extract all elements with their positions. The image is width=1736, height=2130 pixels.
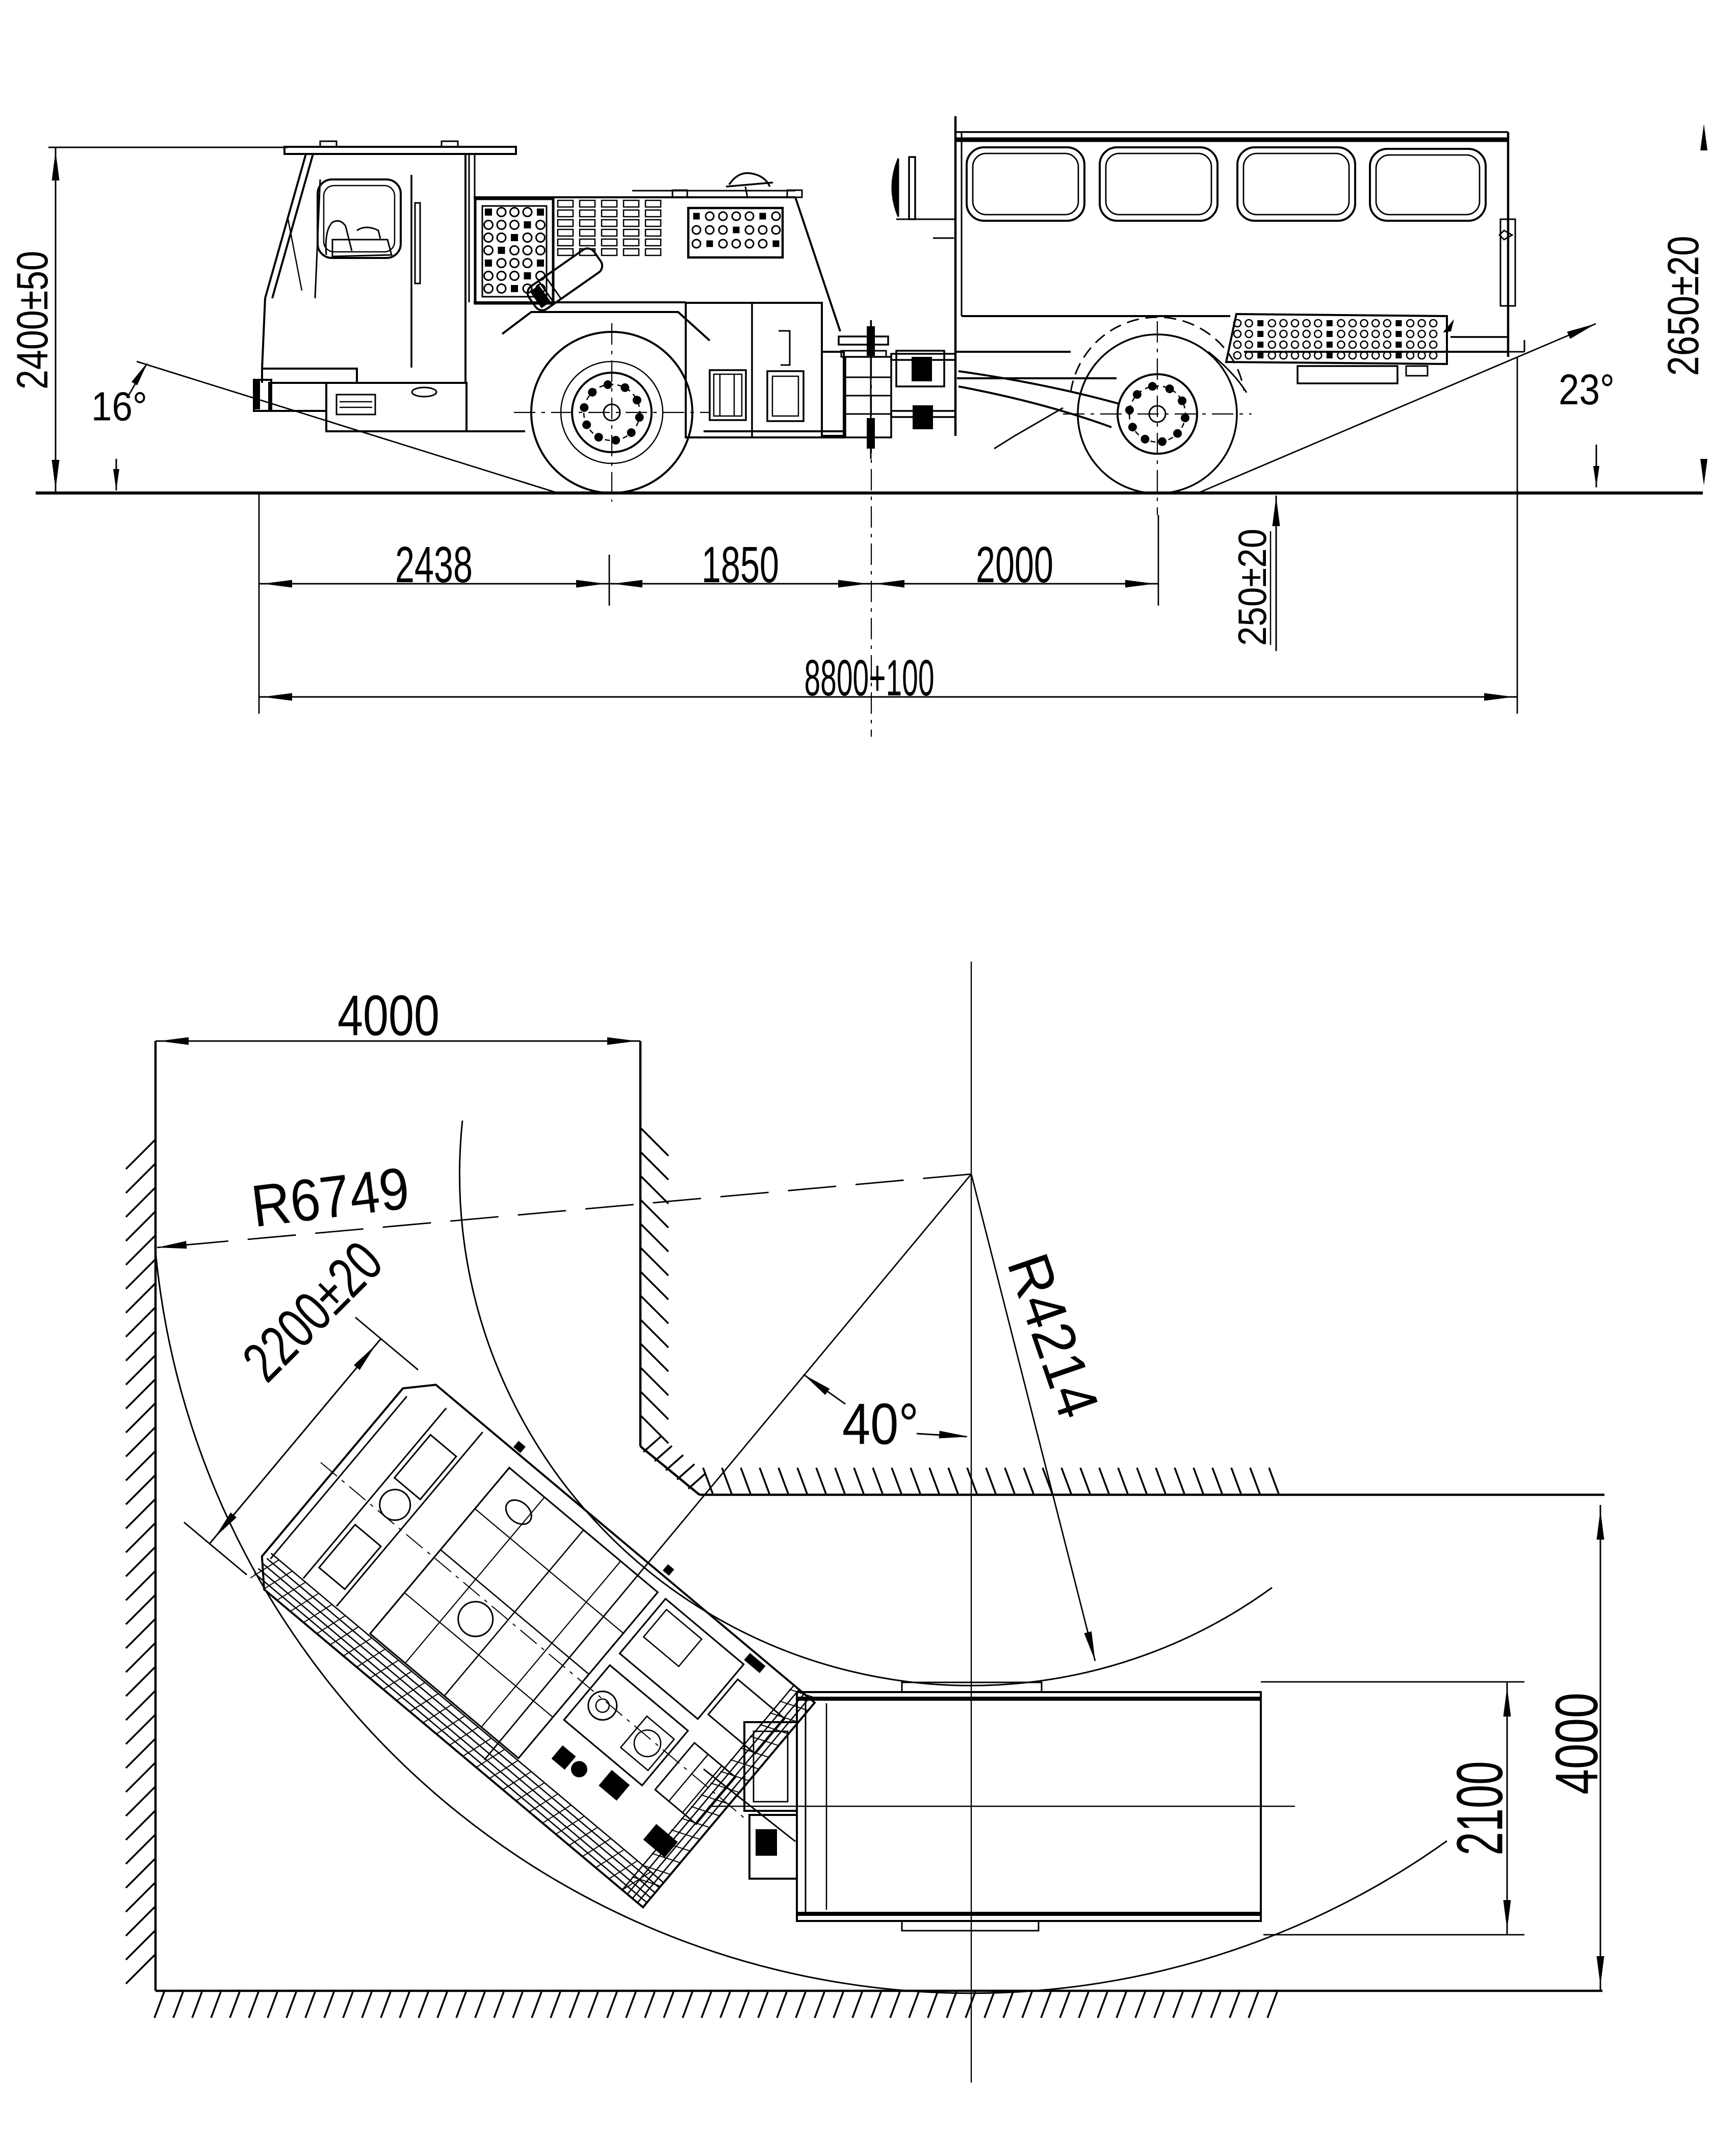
svg-text:23°: 23° — [1559, 366, 1615, 413]
svg-text:8800+100: 8800+100 — [805, 650, 935, 707]
svg-text:40°: 40° — [842, 1392, 919, 1457]
svg-text:2438: 2438 — [395, 536, 473, 593]
svg-text:2650±20: 2650±20 — [1659, 236, 1708, 376]
svg-text:1850: 1850 — [702, 536, 779, 593]
svg-text:2000: 2000 — [976, 536, 1053, 593]
svg-text:250±20: 250±20 — [1230, 529, 1275, 646]
svg-text:2100: 2100 — [1444, 1761, 1517, 1856]
svg-text:2400±50: 2400±50 — [8, 251, 57, 389]
svg-text:16°: 16° — [91, 384, 147, 429]
svg-text:4000: 4000 — [1543, 1693, 1611, 1795]
svg-text:4000: 4000 — [338, 984, 439, 1048]
